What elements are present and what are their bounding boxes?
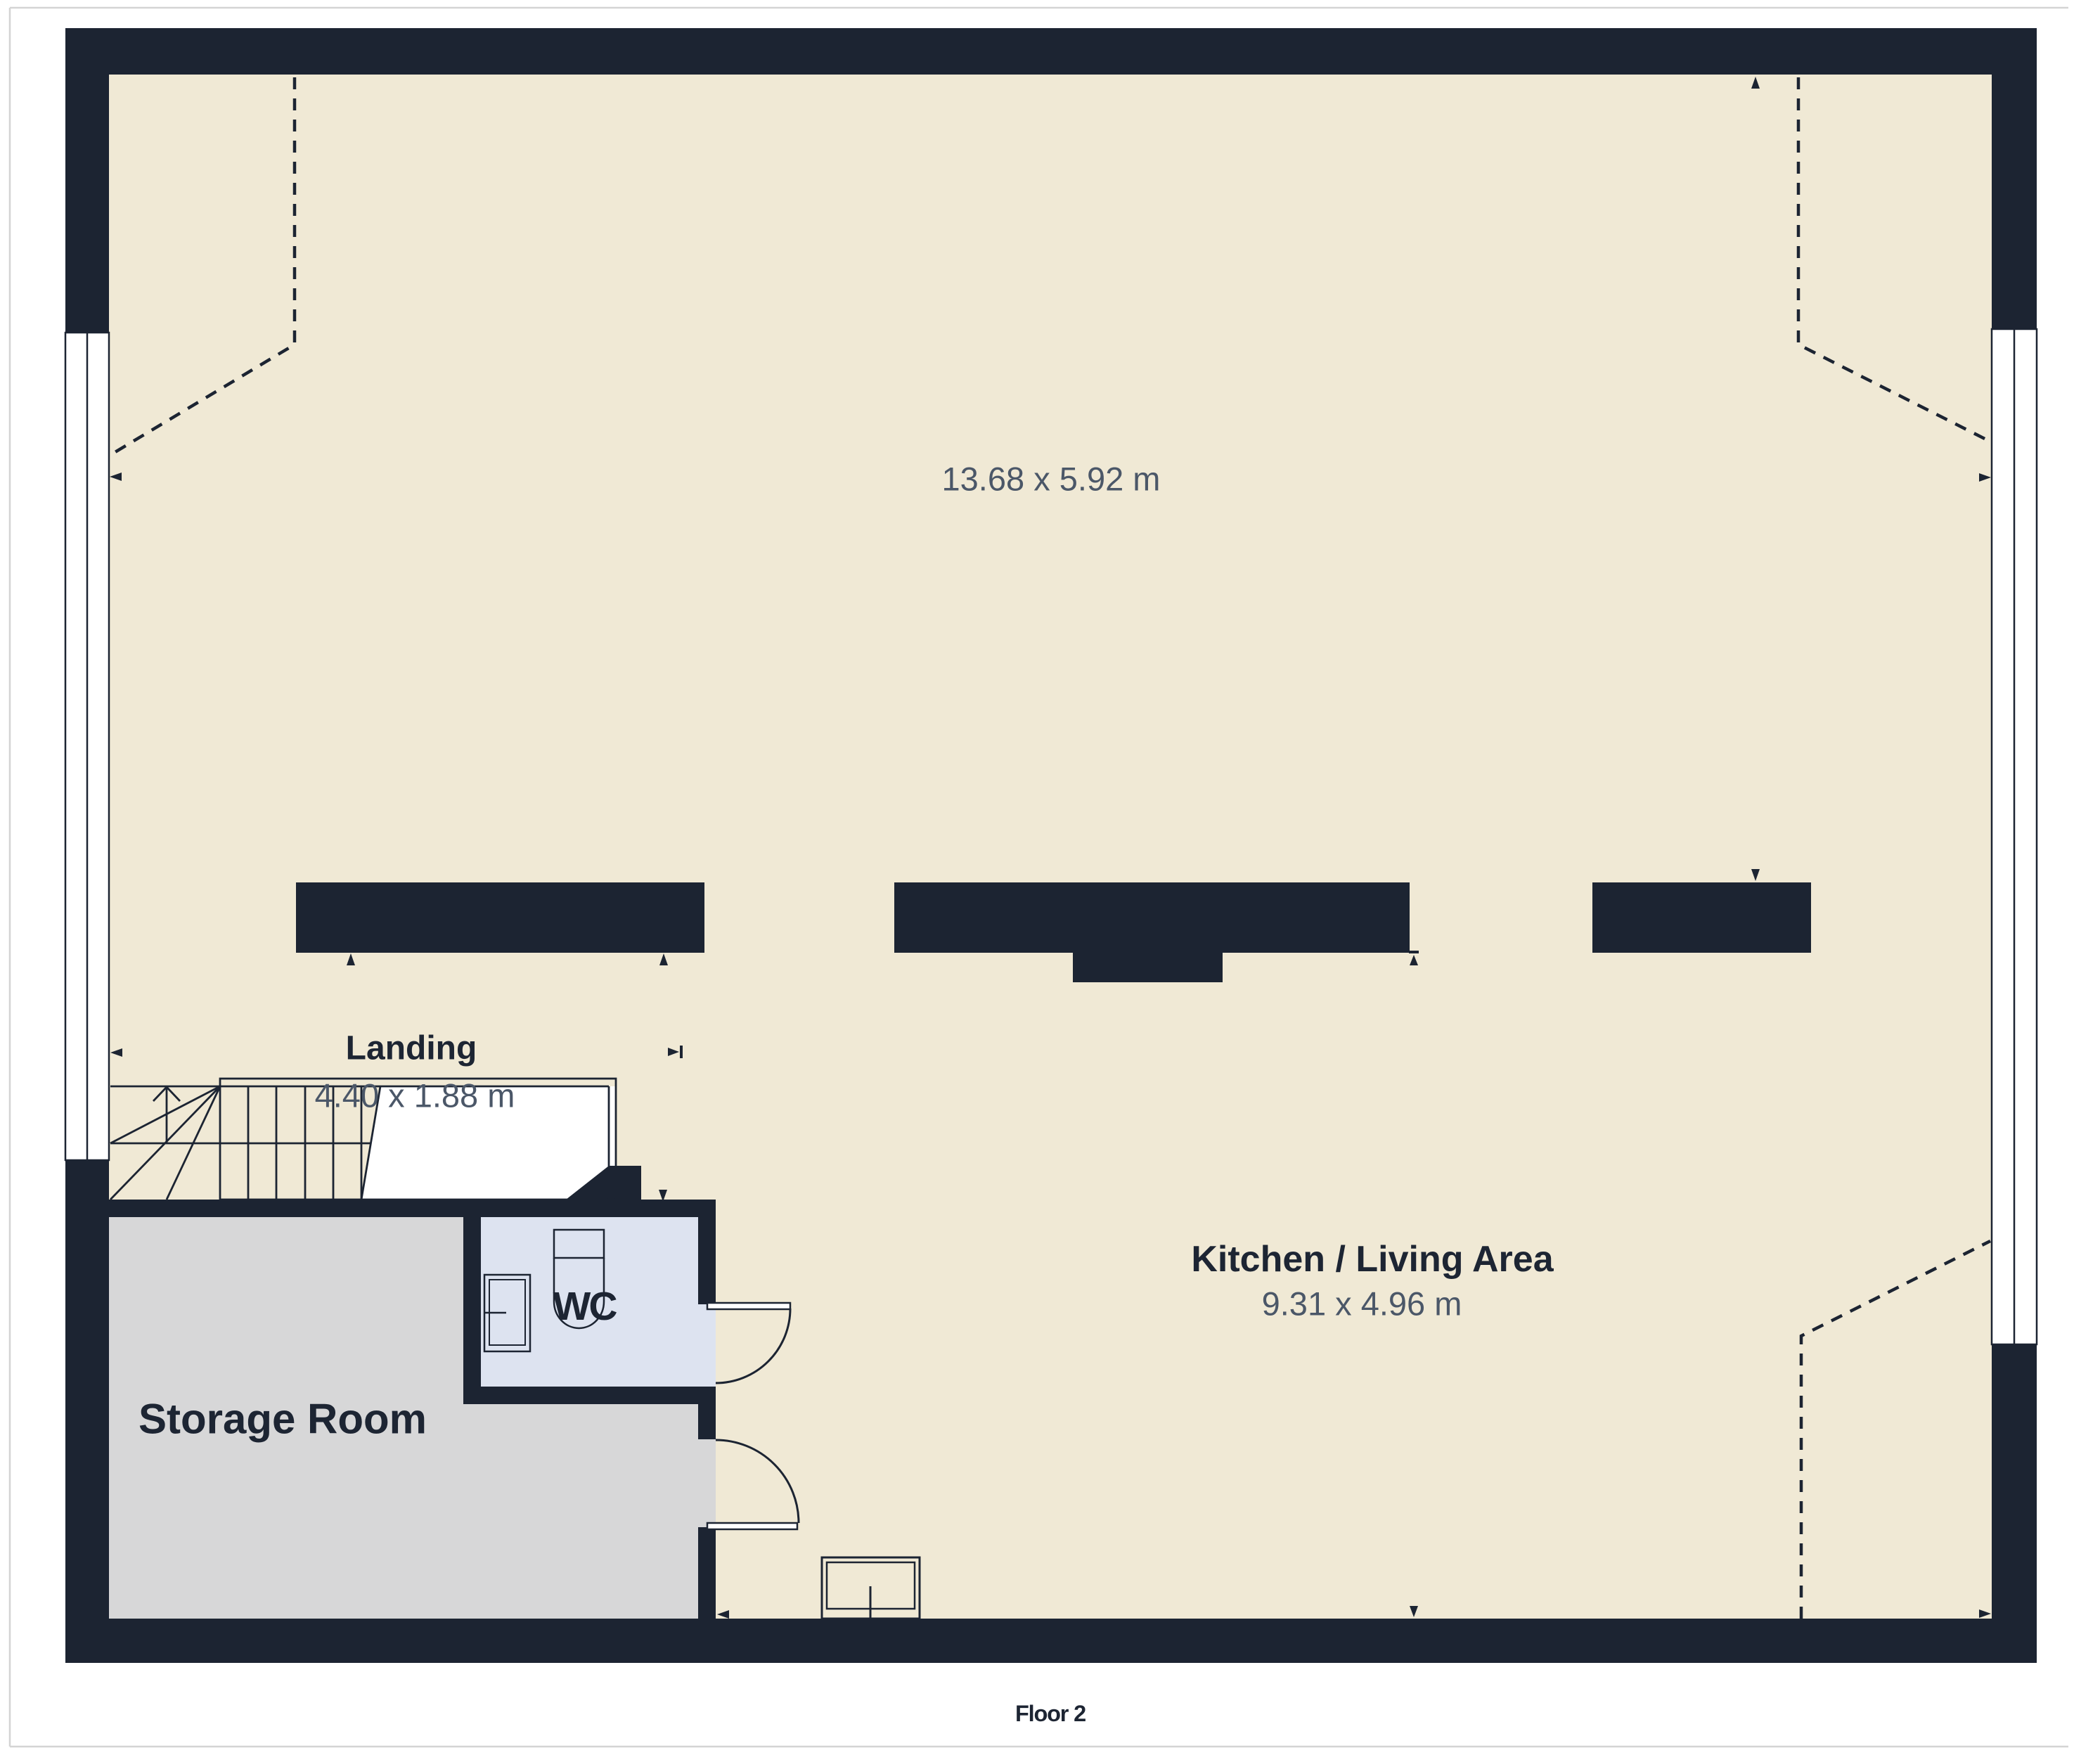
svg-text:Storage Room: Storage Room [139,1396,427,1443]
svg-text:WC: WC [553,1284,617,1329]
svg-text:Floor 2: Floor 2 [1015,1701,1086,1726]
svg-text:9.31 x 4.96 m: 9.31 x 4.96 m [1262,1285,1462,1323]
svg-text:4.40 x 1.88 m: 4.40 x 1.88 m [315,1077,515,1114]
svg-text:Kitchen / Living Area: Kitchen / Living Area [1191,1239,1554,1280]
svg-text:13.68 x 5.92 m: 13.68 x 5.92 m [942,461,1161,498]
svg-text:Landing: Landing [346,1030,477,1067]
